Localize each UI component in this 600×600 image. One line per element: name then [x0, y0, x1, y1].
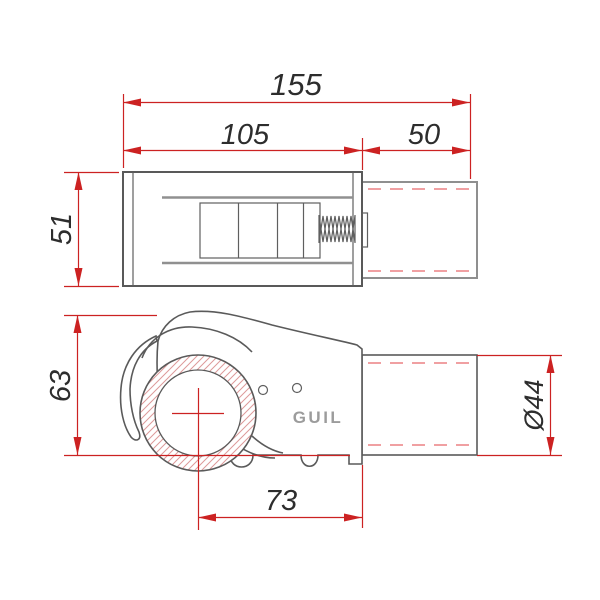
drawing-page: 155 105 50 51	[0, 0, 600, 600]
arrow-left-icon	[362, 147, 380, 155]
dimension-label-51: 51	[46, 213, 78, 245]
tube-side-view	[362, 355, 477, 455]
dimension-body-length: 105	[123, 119, 362, 155]
dimension-tube-diameter: Ø44	[519, 355, 555, 455]
clamp-body-top-view	[123, 172, 362, 286]
arrow-down-icon	[74, 437, 82, 455]
arrow-right-icon	[344, 514, 362, 522]
dimension-label-73: 73	[265, 485, 297, 517]
top-view	[123, 172, 477, 286]
arrow-right-icon	[452, 99, 470, 107]
arrow-right-icon	[344, 147, 362, 155]
arrow-left-icon	[123, 147, 141, 155]
arrow-left-icon	[123, 99, 141, 107]
arrow-down-icon	[75, 268, 83, 286]
arrow-right-icon	[452, 147, 470, 155]
arrow-down-icon	[547, 437, 555, 455]
dimension-body-height: 51	[46, 172, 83, 286]
dimension-label-105: 105	[221, 119, 270, 151]
dimension-label-dia44: Ø44	[519, 379, 549, 431]
side-view: GUIL	[121, 311, 477, 530]
technical-drawing: 155 105 50 51	[0, 0, 600, 600]
dimension-tube-length: 50	[362, 119, 470, 155]
dimension-label-63: 63	[45, 370, 77, 402]
dimension-label-50: 50	[408, 119, 440, 151]
tube-top-view	[362, 182, 477, 278]
dimension-label-155: 155	[270, 67, 322, 102]
arrow-up-icon	[75, 172, 83, 190]
dimension-center-to-end: 73	[198, 485, 362, 522]
dimension-total-length: 155	[123, 67, 470, 107]
arrow-left-icon	[198, 514, 216, 522]
guil-logo: GUIL	[293, 408, 344, 427]
arrow-up-icon	[74, 315, 82, 333]
dimension-overall-height: 63	[45, 315, 82, 455]
arrow-up-icon	[547, 355, 555, 373]
